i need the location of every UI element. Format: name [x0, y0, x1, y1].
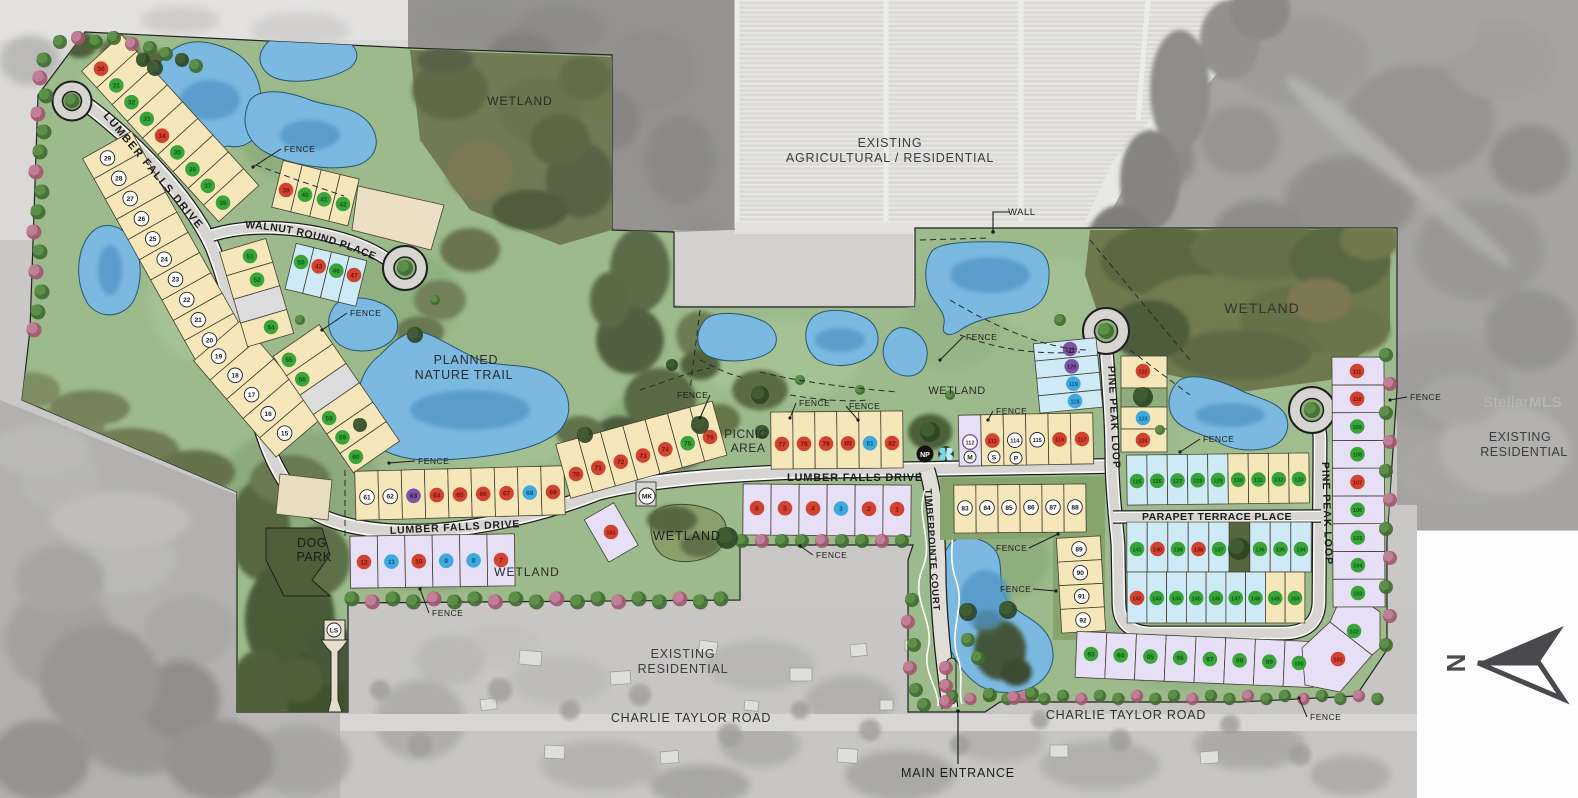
svg-text:89: 89: [1075, 546, 1083, 553]
svg-text:MAIN ENTRANCE: MAIN ENTRANCE: [901, 766, 1015, 780]
svg-text:97: 97: [1206, 656, 1214, 663]
svg-text:FENCE: FENCE: [1203, 434, 1234, 444]
svg-text:FENCE: FENCE: [1310, 712, 1341, 722]
svg-text:103: 103: [1353, 591, 1362, 597]
svg-text:EXISTING: EXISTING: [1489, 430, 1551, 444]
svg-text:109: 109: [1353, 425, 1362, 431]
svg-text:56: 56: [299, 377, 307, 384]
svg-text:5: 5: [783, 506, 787, 513]
svg-text:FENCE: FENCE: [677, 390, 708, 400]
svg-text:61: 61: [363, 494, 371, 501]
svg-text:88: 88: [1071, 504, 1079, 511]
svg-text:143: 143: [1152, 596, 1161, 602]
svg-text:83: 83: [961, 505, 969, 512]
svg-text:FENCE: FENCE: [1410, 392, 1441, 402]
svg-text:78: 78: [800, 441, 808, 448]
svg-text:17: 17: [248, 392, 256, 399]
svg-text:129: 129: [1213, 478, 1222, 484]
svg-text:20: 20: [206, 337, 214, 344]
svg-text:122: 122: [1138, 369, 1147, 375]
svg-text:87: 87: [1049, 505, 1057, 512]
svg-text:90: 90: [1077, 570, 1085, 577]
svg-text:18: 18: [231, 373, 239, 380]
svg-text:67: 67: [503, 491, 511, 498]
svg-text:86: 86: [1027, 505, 1035, 512]
svg-text:107: 107: [1353, 480, 1362, 486]
svg-text:116: 116: [1055, 438, 1064, 444]
svg-text:112: 112: [965, 440, 974, 446]
svg-text:144: 144: [1172, 596, 1182, 602]
svg-text:6: 6: [755, 505, 759, 512]
svg-text:FENCE: FENCE: [966, 332, 997, 342]
svg-text:140: 140: [1153, 547, 1162, 553]
svg-text:94: 94: [1117, 653, 1125, 660]
svg-text:80: 80: [844, 441, 852, 448]
svg-text:85: 85: [1005, 505, 1013, 512]
svg-text:37: 37: [204, 183, 212, 190]
svg-text:64: 64: [433, 492, 441, 499]
svg-text:16: 16: [264, 411, 272, 418]
svg-text:2: 2: [867, 506, 871, 513]
svg-text:58: 58: [325, 415, 333, 422]
svg-text:33: 33: [143, 116, 151, 123]
svg-text:NP: NP: [920, 452, 930, 459]
svg-text:65: 65: [456, 492, 464, 499]
svg-text:8: 8: [472, 558, 476, 565]
svg-text:72: 72: [617, 459, 625, 466]
svg-text:151: 151: [606, 530, 615, 536]
svg-text:FENCE: FENCE: [1000, 584, 1031, 594]
svg-text:FENCE: FENCE: [418, 456, 449, 466]
svg-text:S: S: [992, 454, 997, 461]
svg-text:68: 68: [526, 490, 534, 497]
svg-text:FENCE: FENCE: [996, 543, 1027, 553]
svg-text:96: 96: [1176, 655, 1184, 662]
svg-text:32: 32: [128, 100, 136, 107]
svg-text:35: 35: [174, 150, 182, 157]
svg-text:EXISTING: EXISTING: [651, 647, 716, 661]
svg-text:46: 46: [333, 268, 341, 275]
svg-text:105: 105: [1353, 536, 1362, 542]
svg-text:34: 34: [158, 133, 166, 140]
svg-text:82: 82: [888, 440, 896, 447]
svg-text:PARAPET TERRACE PLACE: PARAPET TERRACE PLACE: [1142, 511, 1292, 523]
svg-text:118: 118: [1070, 399, 1079, 405]
svg-text:59: 59: [339, 435, 347, 442]
svg-text:124: 124: [1138, 438, 1148, 444]
svg-text:EXISTING: EXISTING: [858, 136, 923, 150]
svg-text:147: 147: [1231, 596, 1240, 602]
svg-text:36: 36: [189, 167, 197, 174]
svg-text:102: 102: [1349, 629, 1358, 635]
svg-text:135: 135: [1276, 547, 1285, 553]
svg-text:70: 70: [572, 471, 580, 478]
svg-text:104: 104: [1353, 564, 1363, 570]
svg-text:60: 60: [352, 454, 360, 461]
svg-text:108: 108: [1353, 453, 1362, 459]
svg-text:126: 126: [1153, 479, 1162, 485]
svg-text:12: 12: [360, 559, 368, 566]
svg-text:FENCE: FENCE: [350, 308, 381, 318]
svg-text:133: 133: [1294, 477, 1303, 483]
svg-text:125: 125: [1132, 479, 1141, 485]
svg-text:LS: LS: [330, 627, 339, 634]
svg-text:52: 52: [253, 277, 261, 284]
svg-text:117: 117: [1077, 437, 1086, 443]
svg-text:115: 115: [1033, 438, 1042, 444]
svg-text:75: 75: [684, 441, 692, 448]
svg-text:WETLAND: WETLAND: [928, 385, 985, 397]
svg-text:130: 130: [1234, 478, 1243, 484]
svg-text:4: 4: [811, 506, 815, 513]
svg-text:23: 23: [172, 277, 180, 284]
svg-text:66: 66: [480, 491, 488, 498]
svg-text:76: 76: [706, 434, 714, 441]
svg-text:7: 7: [499, 557, 503, 564]
svg-text:73: 73: [639, 453, 647, 460]
svg-text:P: P: [1014, 455, 1019, 462]
svg-text:AGRICULTURAL / RESIDENTIAL: AGRICULTURAL / RESIDENTIAL: [786, 151, 994, 165]
svg-text:42: 42: [339, 201, 347, 208]
svg-text:39: 39: [282, 187, 290, 194]
svg-text:71: 71: [595, 465, 603, 472]
svg-text:WALL: WALL: [1008, 207, 1036, 218]
svg-text:77: 77: [778, 441, 786, 448]
svg-text:PLANNED: PLANNED: [434, 353, 499, 367]
svg-text:63: 63: [410, 493, 418, 500]
svg-text:99: 99: [1266, 659, 1274, 666]
svg-text:30: 30: [97, 66, 105, 73]
svg-text:27: 27: [127, 196, 135, 203]
svg-text:22: 22: [183, 297, 191, 304]
svg-text:19: 19: [215, 353, 223, 360]
svg-text:15: 15: [281, 430, 289, 437]
svg-text:N: N: [1441, 654, 1471, 673]
svg-text:74: 74: [662, 447, 670, 454]
svg-text:RESIDENTIAL: RESIDENTIAL: [1480, 445, 1567, 459]
svg-text:106: 106: [1353, 508, 1362, 514]
svg-text:26: 26: [138, 216, 146, 223]
svg-text:51: 51: [246, 253, 254, 260]
svg-text:55: 55: [285, 357, 293, 364]
svg-text:FENCE: FENCE: [996, 406, 1027, 416]
svg-text:FENCE: FENCE: [816, 550, 847, 560]
svg-text:WETLAND: WETLAND: [487, 94, 553, 108]
svg-text:111: 111: [1353, 369, 1362, 375]
svg-text:FENCE: FENCE: [284, 144, 315, 154]
svg-text:RESIDENTIAL: RESIDENTIAL: [638, 662, 729, 676]
svg-text:WETLAND: WETLAND: [1224, 300, 1299, 316]
svg-text:136: 136: [1255, 547, 1264, 553]
svg-text:24: 24: [161, 257, 169, 264]
svg-text:150: 150: [1290, 596, 1299, 602]
svg-text:25: 25: [149, 236, 157, 243]
svg-text:91: 91: [1078, 594, 1086, 601]
svg-text:43: 43: [315, 264, 323, 271]
svg-text:120: 120: [1067, 365, 1076, 371]
svg-text:FENCE: FENCE: [432, 608, 463, 618]
svg-text:FENCE: FENCE: [849, 401, 880, 411]
svg-text:139: 139: [1173, 547, 1182, 553]
svg-text:141: 141: [1132, 547, 1141, 553]
svg-text:StellarMLS: StellarMLS: [1483, 394, 1562, 411]
svg-text:9: 9: [444, 558, 448, 565]
svg-text:NATURE TRAIL: NATURE TRAIL: [415, 368, 514, 382]
svg-text:81: 81: [866, 441, 874, 448]
svg-text:50: 50: [297, 259, 305, 266]
svg-text:1: 1: [895, 506, 899, 513]
svg-text:84: 84: [983, 505, 991, 512]
svg-text:101: 101: [1333, 657, 1342, 663]
svg-text:3: 3: [839, 506, 843, 513]
svg-text:MK: MK: [642, 493, 652, 500]
svg-text:FENCE: FENCE: [799, 398, 830, 408]
svg-text:100: 100: [1294, 661, 1303, 667]
svg-text:138: 138: [1194, 547, 1203, 553]
svg-text:79: 79: [822, 441, 830, 448]
svg-text:95: 95: [1147, 654, 1155, 661]
svg-text:134: 134: [1296, 547, 1306, 553]
svg-text:148: 148: [1251, 596, 1260, 602]
svg-text:M: M: [967, 454, 973, 461]
svg-text:21: 21: [195, 317, 203, 324]
svg-text:119: 119: [1069, 382, 1078, 388]
svg-text:11: 11: [388, 559, 395, 566]
svg-text:62: 62: [387, 494, 395, 501]
svg-text:40: 40: [301, 192, 309, 199]
svg-text:98: 98: [1236, 658, 1244, 665]
svg-text:146: 146: [1211, 596, 1220, 602]
svg-text:41: 41: [320, 197, 328, 204]
svg-text:DOG: DOG: [297, 536, 327, 550]
svg-text:149: 149: [1271, 596, 1280, 602]
svg-text:WETLAND: WETLAND: [653, 529, 721, 543]
svg-text:PICNIC: PICNIC: [724, 427, 768, 441]
svg-text:PARK: PARK: [296, 550, 331, 564]
svg-text:123: 123: [1138, 416, 1147, 422]
svg-text:93: 93: [1087, 651, 1095, 658]
svg-text:29: 29: [104, 155, 112, 162]
svg-text:CHARLIE TAYLOR ROAD: CHARLIE TAYLOR ROAD: [1046, 708, 1206, 722]
svg-text:128: 128: [1193, 479, 1202, 485]
svg-text:31: 31: [113, 83, 121, 90]
svg-text:47: 47: [350, 272, 358, 279]
svg-text:CHARLIE TAYLOR ROAD: CHARLIE TAYLOR ROAD: [611, 711, 771, 725]
svg-text:131: 131: [1254, 478, 1263, 484]
svg-text:127: 127: [1173, 479, 1182, 485]
svg-text:132: 132: [1274, 478, 1283, 484]
svg-text:145: 145: [1192, 596, 1201, 602]
svg-text:92: 92: [1079, 617, 1087, 624]
svg-text:142: 142: [1132, 596, 1141, 602]
svg-text:110: 110: [1353, 397, 1362, 403]
svg-text:WETLAND: WETLAND: [494, 565, 560, 579]
svg-text:113: 113: [988, 439, 997, 445]
svg-text:LUMBER FALLS DRIVE: LUMBER FALLS DRIVE: [787, 472, 923, 484]
svg-text:69: 69: [549, 489, 557, 496]
svg-text:114: 114: [1010, 439, 1020, 445]
svg-text:AREA: AREA: [731, 441, 766, 455]
svg-text:137: 137: [1214, 547, 1223, 553]
svg-text:38: 38: [219, 200, 227, 207]
svg-text:54: 54: [267, 324, 275, 331]
svg-text:28: 28: [115, 176, 123, 183]
svg-text:10: 10: [415, 559, 423, 566]
